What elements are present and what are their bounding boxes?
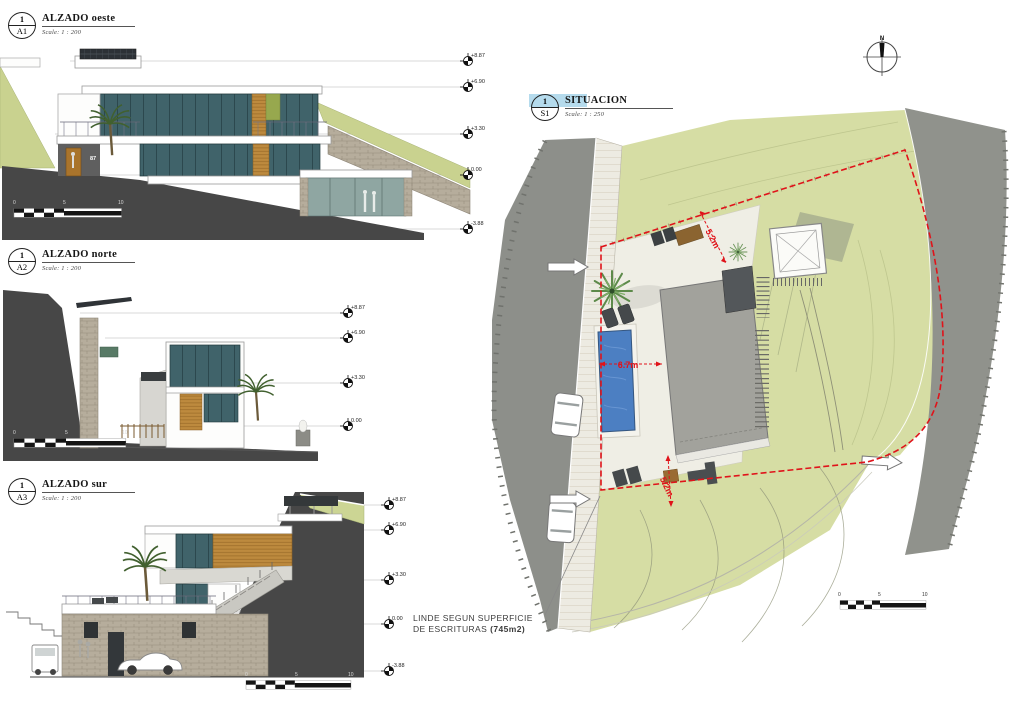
site-plan-drawing: 5.2m 6.7m 5.2m N 0 5 10: [492, 36, 1007, 642]
annotation-line1: LINDE SEGUN SUPERFICIE: [413, 613, 533, 624]
house-number-label: 87: [90, 156, 96, 162]
svg-text:5: 5: [63, 200, 66, 206]
svg-text:5: 5: [65, 430, 68, 436]
level-label: +6.90: [351, 330, 365, 336]
south-elevation-drawing: +8.87 +6.90 +3.30 0.00 -3.88 0 5 10: [6, 492, 406, 689]
north-arrow-icon: N: [863, 36, 901, 76]
level-label: +3.30: [351, 375, 365, 381]
view-title: ALZADO sur: [42, 478, 135, 491]
view-tag-a1: 1 A1: [8, 12, 36, 39]
level-label: +6.90: [392, 522, 406, 528]
view-tag-s1: 1 S1: [531, 94, 559, 121]
house-north: [120, 342, 244, 448]
scale-bar-site: 0 5 10: [838, 592, 928, 609]
van: [32, 645, 58, 675]
svg-text:5: 5: [295, 672, 298, 678]
view-title-block-situacion: 1 S1 SITUACION Scale: 1 : 250: [531, 94, 673, 121]
view-title-block-oeste: 1 A1 ALZADO oeste Scale: 1 : 200: [8, 12, 135, 39]
level-label: -3.88: [392, 663, 405, 669]
house-roof: [660, 266, 770, 463]
view-number: 1: [20, 15, 24, 25]
view-title: SITUACION: [565, 94, 673, 107]
svg-text:10: 10: [122, 430, 128, 436]
level-label: +8.87: [471, 53, 485, 59]
annotation-line2: DE ESCRITURAS(745m2): [413, 624, 533, 635]
view-scale: Scale: 1 : 200: [42, 29, 135, 36]
parked-car: [551, 392, 584, 437]
view-title: ALZADO oeste: [42, 12, 135, 25]
view-code: S1: [541, 108, 550, 119]
view-title-block-norte: 1 A2 ALZADO norte Scale: 1 : 200: [8, 248, 135, 275]
level-label: 0.00: [392, 616, 403, 622]
dimension-label: 6.7m: [618, 360, 639, 370]
view-number: 1: [20, 251, 24, 261]
annotation-area-value: (745m2): [490, 624, 525, 634]
hillside-left: [0, 66, 55, 168]
view-code: A2: [17, 262, 27, 273]
level-label: +3.30: [471, 126, 485, 132]
level-label: +6.90: [471, 79, 485, 85]
north-label: N: [880, 36, 884, 42]
level-label: 0.00: [351, 418, 362, 424]
entry-canopy: [722, 266, 756, 313]
stone-pier: [80, 318, 98, 448]
view-scale: Scale: 1 : 200: [42, 265, 135, 272]
svg-text:10: 10: [118, 200, 124, 206]
boundary-annotation: LINDE SEGUN SUPERFICIE DE ESCRITURAS(745…: [413, 613, 533, 634]
pergola: [76, 297, 132, 308]
swimming-pool: [598, 330, 635, 432]
svg-text:0: 0: [13, 430, 16, 436]
view-scale: Scale: 1 : 200: [42, 495, 135, 502]
level-markers-south: +8.87 +6.90 +3.30 0.00 -3.88: [381, 497, 406, 676]
drawing-artwork: 87 +8.87 +6.90 +3.30 0.00 -3.88 0 5 10: [0, 0, 1024, 703]
level-label: +3.30: [392, 572, 406, 578]
view-scale: Scale: 1 : 250: [565, 111, 673, 118]
view-title: ALZADO norte: [42, 248, 135, 261]
north-elevation-drawing: +8.87 +6.90 +3.30 0.00 0 5 10: [3, 290, 365, 461]
pavilion: [770, 223, 827, 278]
side-steps: [6, 612, 62, 636]
view-title-block-sur: 1 A3 ALZADO sur Scale: 1 : 200: [8, 478, 135, 505]
level-label: +8.87: [351, 305, 365, 311]
svg-text:5: 5: [878, 592, 881, 598]
svg-text:0: 0: [13, 200, 16, 206]
svg-text:10: 10: [348, 672, 354, 678]
level-label: -3.88: [471, 221, 484, 227]
view-code: A1: [17, 26, 27, 37]
level-label: +8.87: [392, 497, 406, 503]
view-number: 1: [20, 481, 24, 491]
view-tag-a3: 1 A3: [8, 478, 36, 505]
svg-text:10: 10: [922, 592, 928, 598]
architectural-drawing-sheet: 87 +8.87 +6.90 +3.30 0.00 -3.88 0 5 10: [0, 0, 1024, 703]
view-code: A3: [17, 492, 27, 503]
view-number: 1: [543, 97, 547, 107]
svg-text:0: 0: [245, 672, 248, 678]
view-tag-a2: 1 A2: [8, 248, 36, 275]
west-elevation-drawing: 87 +8.87 +6.90 +3.30 0.00 -3.88 0 5 10: [0, 49, 485, 240]
parked-car: [547, 501, 577, 543]
level-label: 0.00: [471, 167, 482, 173]
svg-text:0: 0: [838, 592, 841, 598]
level-markers-north: +8.87 +6.90 +3.30 0.00: [340, 305, 365, 431]
